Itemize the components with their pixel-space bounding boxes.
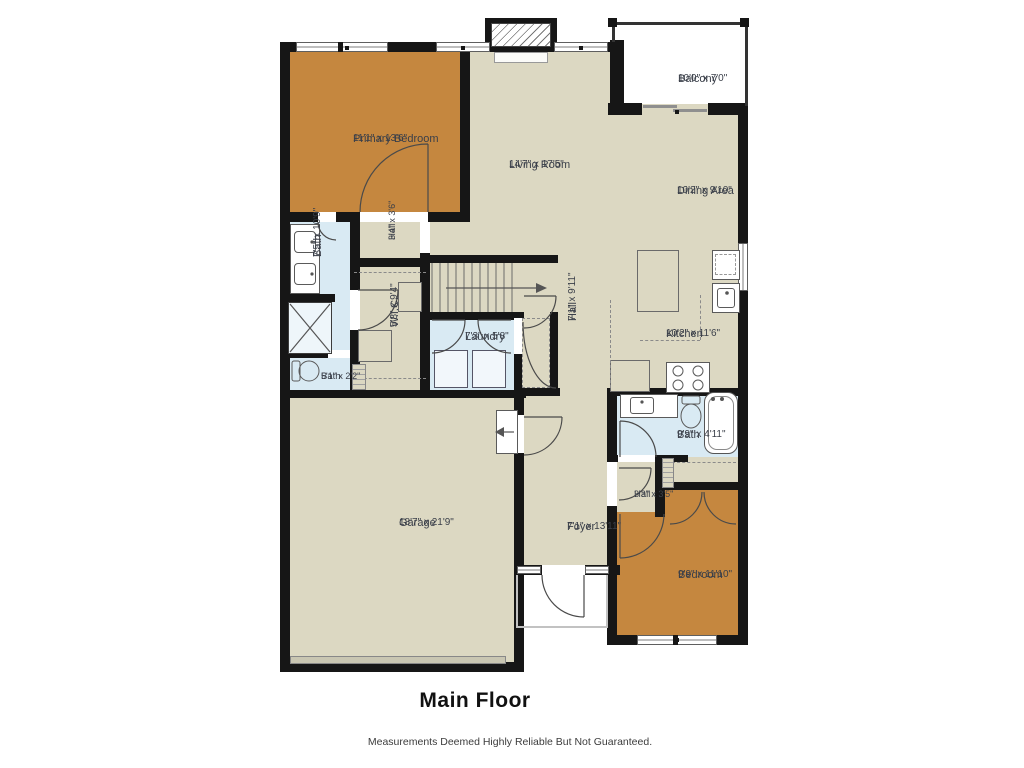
wall-segment — [550, 312, 558, 392]
dryer — [472, 350, 506, 388]
porch-edge — [606, 575, 608, 627]
fireplace-hatch — [491, 23, 551, 47]
washer — [434, 350, 468, 388]
window — [585, 566, 609, 574]
fixture — [708, 396, 734, 450]
room-label-text: 3'4" x 3'6" — [387, 201, 398, 240]
sink — [630, 397, 654, 414]
fixture — [608, 18, 617, 27]
room-label-text: 18'7" x 21'9" — [399, 517, 454, 530]
room-label-text: 5'8" x 9'4" — [389, 283, 402, 327]
dimension-tick — [579, 46, 583, 50]
garage-step-landing — [496, 410, 518, 454]
floor-area — [517, 390, 612, 570]
closet-shelf — [662, 458, 674, 488]
dimension-tick — [283, 320, 287, 324]
shower — [288, 302, 332, 354]
wall-segment — [280, 390, 526, 398]
door-opening — [542, 565, 585, 575]
disclaimer-text: Measurements Deemed Highly Reliable But … — [368, 736, 652, 748]
dimension-tick — [283, 520, 287, 524]
wall-segment — [350, 258, 430, 267]
fixture — [354, 272, 426, 273]
porch-step — [516, 626, 608, 628]
wall-segment — [610, 40, 624, 115]
floor-plan-canvas: Primary Bedroom11'1" x 13'6" Living Room… — [0, 0, 1024, 768]
room-label-text: 3'3" x 3'5" — [634, 489, 673, 500]
room-label-text: 10'0" x 7'0" — [678, 73, 727, 86]
floor-area — [610, 18, 750, 104]
door-opening — [607, 462, 617, 506]
balcony-rail — [612, 22, 748, 25]
dimension-tick — [393, 665, 397, 669]
window — [517, 566, 541, 574]
closet-shelf — [358, 330, 392, 362]
floor-area — [612, 462, 655, 512]
pantry-closet — [522, 318, 550, 388]
room-label-text: 10'2" x 9'10" — [677, 185, 732, 198]
dimension-tick — [345, 46, 349, 50]
fireplace-hearth — [494, 52, 548, 63]
door-arc — [542, 575, 584, 617]
room-label-text: 14'7" x 17'5" — [509, 159, 564, 172]
fixture — [610, 300, 611, 388]
kitchen-island — [637, 250, 679, 312]
dimension-tick — [741, 330, 745, 334]
room-label-text: 7'5" x 10'9" — [312, 208, 325, 257]
fixture — [717, 288, 735, 308]
fixture — [672, 462, 736, 463]
room-label-text: 9'9" x 4'11" — [677, 429, 726, 442]
dimension-tick — [741, 520, 745, 524]
room-label-text: 11'1" x 13'6" — [353, 133, 407, 146]
sliding-door — [643, 105, 677, 108]
kitchen-counter — [610, 360, 650, 392]
door-opening — [350, 290, 360, 330]
garage-door — [290, 656, 506, 664]
window — [338, 42, 343, 52]
wall-segment — [424, 255, 558, 263]
dimension-tick — [675, 638, 679, 642]
sink — [294, 263, 316, 285]
room-label-text: 9'9" x 11'10" — [678, 569, 732, 582]
dimension-tick — [461, 46, 465, 50]
dimension-tick — [675, 110, 679, 114]
dimension-tick — [283, 130, 287, 134]
fixture — [715, 254, 736, 275]
room-label-text: 10'2" x 11'6" — [666, 328, 720, 341]
wall-segment — [708, 103, 748, 115]
door-opening — [618, 455, 655, 462]
wall-segment — [460, 42, 470, 222]
door-opening — [420, 222, 430, 253]
wall-segment — [738, 103, 748, 645]
wall-segment — [514, 388, 560, 396]
stove — [666, 362, 710, 393]
floor-title: Main Floor — [419, 689, 530, 713]
room-label-text: 5'1" x 2'2" — [321, 371, 360, 382]
porch-edge — [516, 575, 518, 627]
dimension-tick — [741, 180, 745, 184]
balcony-rail — [745, 22, 748, 106]
room-label-text: 7'1" x 13'11" — [567, 521, 621, 534]
room-label-text: 7'3" x 5'8" — [465, 331, 509, 344]
wall-segment — [280, 294, 335, 302]
wall-segment — [424, 312, 524, 320]
room-label-text: 7'1" x 9'11" — [567, 272, 580, 321]
fixture — [740, 18, 749, 27]
